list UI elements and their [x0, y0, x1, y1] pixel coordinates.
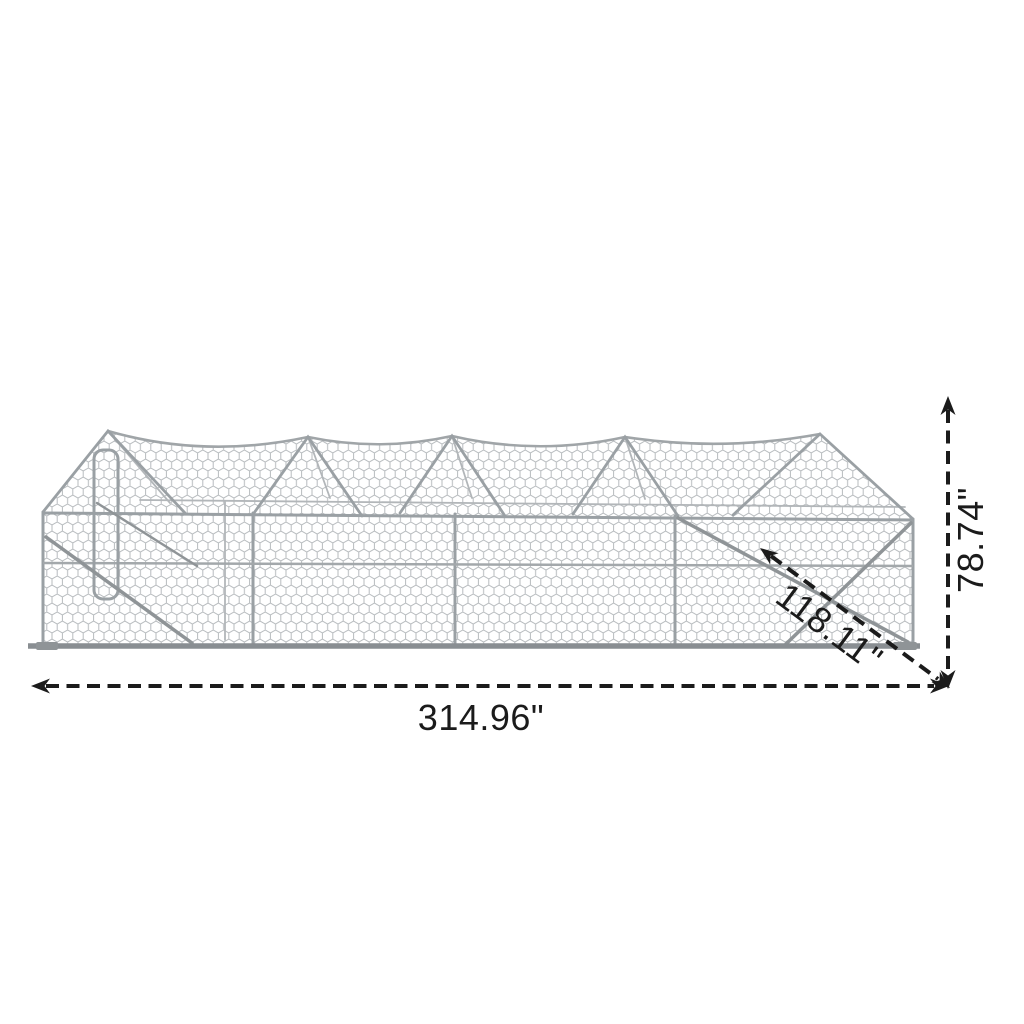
width-dimension: 314.96": [31, 679, 949, 739]
product-image-canvas: 314.96" 78.74" 118.11": [0, 0, 1024, 1024]
product-diagram: 314.96" 78.74" 118.11": [0, 0, 1024, 1024]
base-foot-left: [36, 642, 58, 650]
height-dimension-label: 78.74": [950, 487, 991, 593]
width-dimension-label: 314.96": [418, 697, 544, 738]
height-dimension: 78.74": [941, 396, 992, 689]
